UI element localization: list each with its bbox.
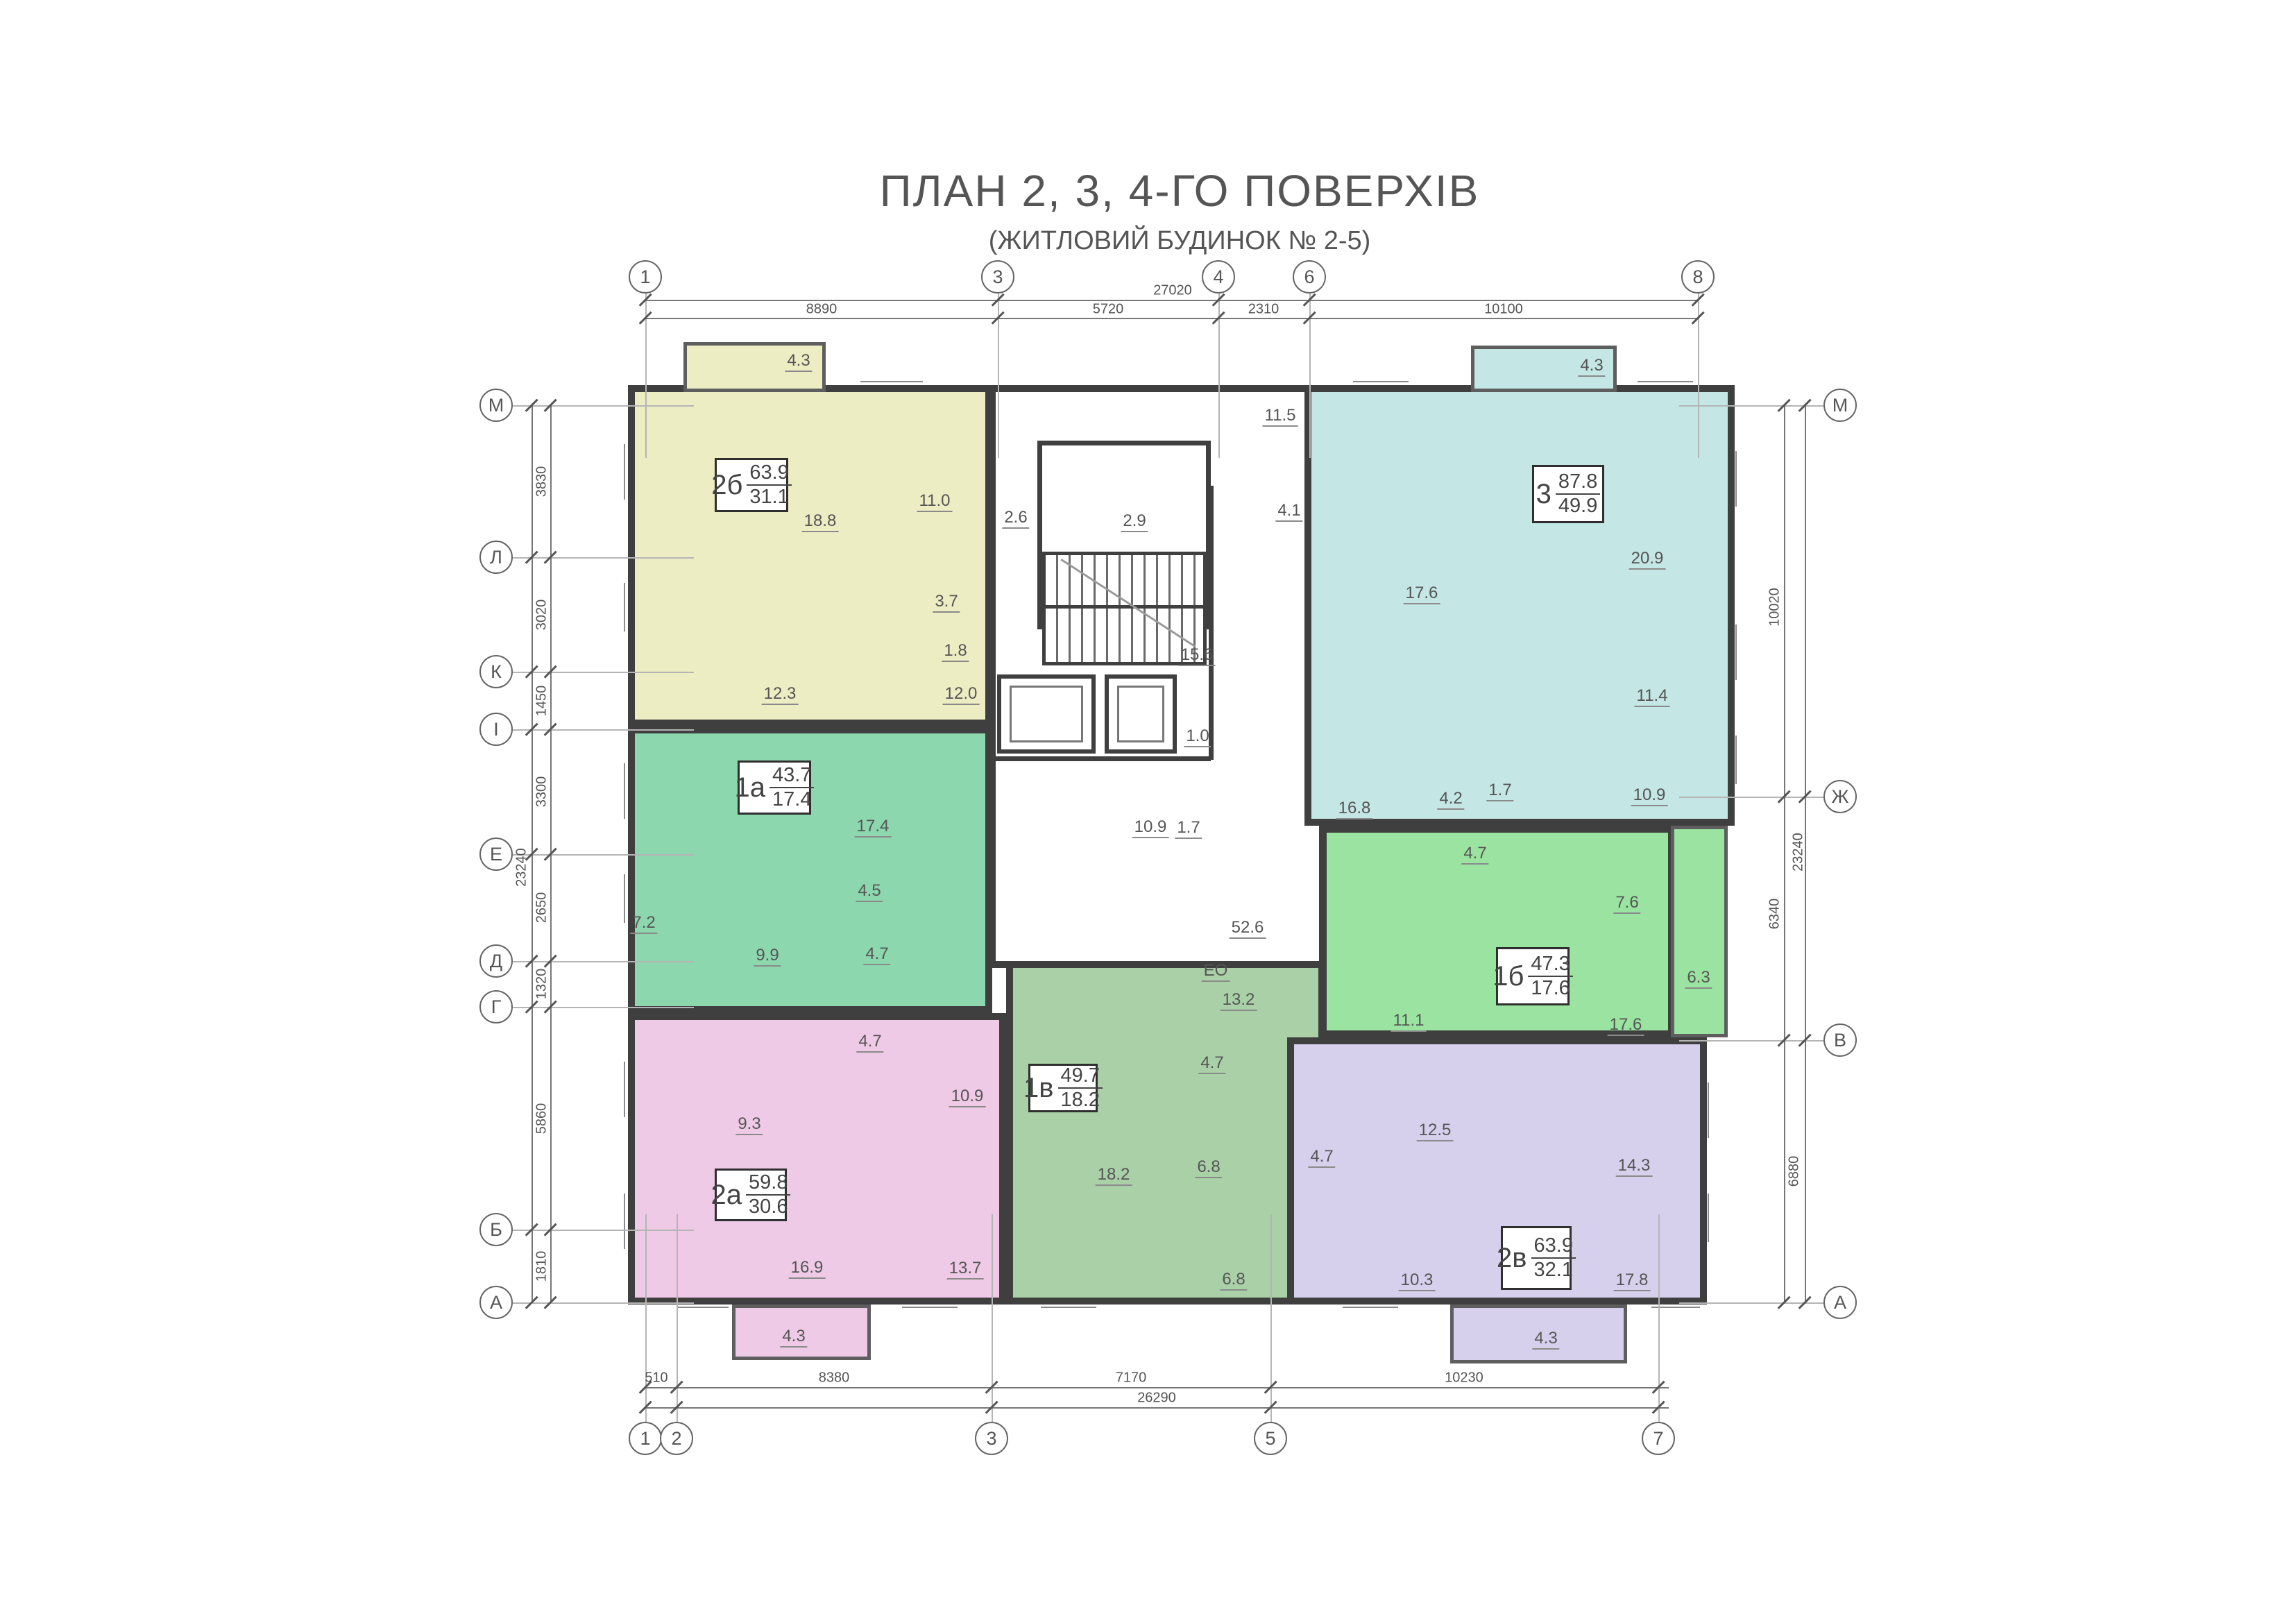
axis-circle-bottom-2: 2 [660, 1422, 693, 1455]
balcony-1b [1671, 826, 1728, 1037]
area-living: 32.1 [1534, 1259, 1573, 1282]
axis-circle-bottom-1: 1 [629, 1422, 662, 1455]
apartment-number: 2а [711, 1180, 742, 1211]
core-area-label: 52.6 [1230, 918, 1266, 939]
apartment-areas: 59.830.6 [746, 1171, 790, 1219]
apartment-areas: 49.718.2 [1058, 1064, 1103, 1112]
axis-stub [645, 1214, 647, 1422]
room-area-label: 17.6 [1404, 584, 1440, 604]
axis-stub [512, 672, 694, 673]
area-total: 49.7 [1058, 1064, 1103, 1089]
plan-title: ПЛАН 2, 3, 4-ГО ПОВЕРХІВ [860, 165, 1499, 216]
axis-circle-left-Д: Д [479, 944, 513, 978]
dimension-label: 23240 [514, 848, 530, 887]
area-living: 17.4 [772, 788, 811, 811]
axis-stub [1270, 1214, 1272, 1422]
axis-circle-top-3: 3 [981, 260, 1014, 294]
axis-stub [512, 1230, 694, 1231]
area-total: 47.3 [1528, 953, 1572, 977]
room-area-label: 12.5 [1417, 1121, 1454, 1141]
apartment-label-1b: 1б47.317.6 [1496, 947, 1570, 1005]
room-area-label: 6.8 [1195, 1157, 1222, 1178]
dimension-label: 5860 [534, 1103, 550, 1135]
apartment-label-2b: 2б63.931.1 [715, 458, 788, 512]
dimension-line [645, 1407, 1669, 1409]
stair-landing-line [1042, 605, 1207, 609]
dimension-label: 3300 [534, 776, 550, 808]
apartment-areas: 47.317.6 [1528, 953, 1572, 1001]
dimension-label: 510 [645, 1370, 667, 1386]
room-area-label: 17.6 [1608, 1015, 1644, 1036]
room-area-label: 17.4 [855, 817, 892, 838]
dimension-line [645, 1387, 1669, 1388]
apartment-number: 1б [1493, 961, 1524, 992]
axis-circle-top-6: 6 [1293, 260, 1326, 294]
room-area-label: 18.2 [1096, 1165, 1132, 1186]
area-living: 30.6 [749, 1196, 788, 1218]
area-living: 49.9 [1558, 495, 1597, 518]
apartment-1b [1320, 826, 1675, 1037]
room-area-label: 12.0 [943, 684, 980, 705]
dimension-label: 5720 [1093, 302, 1124, 318]
core-wall [992, 756, 1211, 761]
room-area-label: 10.9 [949, 1087, 986, 1107]
axis-circle-left-Б: Б [479, 1213, 513, 1246]
apartment-number: 2б [711, 470, 742, 501]
elevator-shaft-2 [1105, 674, 1177, 754]
room-area-label: 3.7 [933, 592, 960, 613]
area-total: 59.8 [746, 1171, 790, 1196]
area-living: 31.1 [749, 486, 788, 509]
room-area-label: 11.1 [1391, 1011, 1427, 1032]
axis-circle-bottom-5: 5 [1254, 1422, 1287, 1455]
axis-circle-right-В: В [1823, 1023, 1857, 1057]
dimension-label: 27020 [1153, 283, 1192, 299]
core-wall [1209, 486, 1214, 760]
apartment-areas: 63.932.1 [1531, 1234, 1576, 1282]
axis-circle-top-4: 4 [1202, 260, 1235, 294]
axis-circle-left-І: І [479, 713, 513, 746]
core-area-label: 1.0 [1184, 726, 1211, 747]
apartment-number: 1в [1023, 1073, 1054, 1104]
apartment-label-1v: 1в49.718.2 [1028, 1064, 1098, 1112]
room-area-label: 14.3 [1616, 1156, 1653, 1177]
dimension-line [1784, 405, 1785, 1302]
elevator-shaft-1 [997, 674, 1096, 754]
room-area-label: 20.9 [1629, 549, 1666, 570]
dimension-label: 10020 [1767, 588, 1783, 627]
elevator-car-icon [1010, 686, 1083, 742]
core-area-label: 4.1 [1275, 501, 1302, 522]
apartment-areas: 43.717.4 [769, 764, 814, 812]
apartment-areas: 87.849.9 [1556, 470, 1600, 518]
dimension-label: 6880 [1787, 1156, 1803, 1187]
axis-stub [512, 854, 694, 856]
dimension-label: 7170 [1116, 1370, 1147, 1386]
axis-circle-right-А: А [1823, 1286, 1857, 1319]
dimension-label: 1450 [534, 686, 550, 717]
dimension-label: 23240 [1791, 833, 1807, 872]
apartment-label-2v: 2в63.932.1 [1501, 1226, 1572, 1290]
axis-circle-left-Л: Л [479, 541, 513, 574]
dimension-label: 2650 [534, 892, 550, 924]
apartment-areas: 63.931.1 [747, 461, 791, 509]
dimension-label: 1320 [534, 969, 550, 1000]
dimension-label: 8380 [819, 1370, 850, 1386]
axis-circle-right-Ж: Ж [1823, 780, 1857, 813]
dimension-label: 10100 [1484, 302, 1523, 318]
core-area-label: 2.9 [1121, 511, 1148, 532]
core-area-label: 1.7 [1175, 818, 1202, 839]
room-area-label: 4.7 [1461, 844, 1488, 865]
room-area-label: 4.3 [785, 351, 812, 372]
axis-stub [1658, 1214, 1660, 1422]
room-area-label: 10.9 [1631, 785, 1668, 806]
apartment-number: 3 [1536, 479, 1551, 510]
room-area-label: 7.6 [1613, 893, 1640, 914]
apartment-number: 2в [1497, 1243, 1527, 1274]
room-area-label: 4.5 [856, 881, 883, 902]
room-area-label: 11.0 [917, 491, 953, 512]
room-area-label: 7.2 [630, 913, 657, 934]
apartment-number: 1а [735, 772, 766, 804]
plan-subtitle: (ЖИТЛОВИЙ БУДИНОК № 2-5) [860, 226, 1499, 256]
dimension-label: 8890 [806, 302, 837, 318]
axis-stub [512, 405, 694, 407]
room-area-label: 4.2 [1437, 789, 1464, 810]
dimension-label: 3830 [534, 466, 550, 498]
floor-plan: ПЛАН 2, 3, 4-ГО ПОВЕРХІВ (ЖИТЛОВИЙ БУДИН… [0, 0, 2296, 1623]
axis-stub [512, 961, 694, 962]
room-area-label: 12.3 [762, 684, 799, 705]
room-area-label: 4.3 [1532, 1329, 1559, 1350]
apartment-1v [1006, 961, 1325, 1305]
axis-circle-top-8: 8 [1681, 260, 1715, 294]
axis-circle-left-Е: Е [479, 838, 513, 871]
room-area-label: 9.9 [754, 946, 781, 967]
room-area-label: 4.3 [1578, 356, 1605, 377]
area-total: 63.9 [1531, 1234, 1576, 1259]
area-total: 63.9 [747, 461, 791, 486]
apartment-label-2a: 2а59.830.6 [715, 1169, 787, 1221]
axis-circle-top-1: 1 [629, 260, 662, 294]
room-area-label: 4.7 [1308, 1147, 1335, 1168]
core-area-label: 2.6 [1002, 508, 1029, 529]
room-area-label: 4.7 [856, 1032, 883, 1053]
core-area-label: 15.6 [1179, 645, 1216, 666]
dimension-label: 26290 [1137, 1391, 1176, 1407]
room-area-label: 18.8 [802, 511, 839, 532]
axis-stub [512, 1007, 694, 1008]
axis-stub [677, 1214, 678, 1422]
dimension-line [645, 318, 1698, 319]
room-area-label: 9.3 [735, 1114, 763, 1135]
room-area-label: 16.8 [1336, 799, 1373, 819]
room-area-label: 13.2 [1221, 990, 1257, 1011]
axis-circle-right-М: М [1823, 389, 1857, 422]
room-area-label: 6.3 [1685, 968, 1712, 989]
axis-stub [992, 1214, 993, 1422]
dimension-label: 6340 [1767, 899, 1783, 930]
axis-circle-left-А: А [479, 1286, 513, 1319]
core-area-label: 10.9 [1132, 817, 1169, 838]
axis-stub [512, 557, 694, 559]
apartment-3 [1304, 385, 1735, 826]
room-area-label: 16.9 [789, 1258, 826, 1279]
axis-stub [512, 1302, 694, 1304]
dimension-label: 10230 [1445, 1370, 1483, 1386]
room-area-label: 4.7 [1198, 1053, 1225, 1074]
dimension-label: 3020 [534, 600, 550, 631]
room-area-label: 4.7 [863, 944, 890, 965]
axis-circle-bottom-3: 3 [975, 1422, 1008, 1455]
area-total: 87.8 [1556, 470, 1600, 495]
core-area-label: 11.5 [1263, 406, 1298, 427]
area-total: 43.7 [769, 764, 814, 788]
room-area-label: 10.3 [1399, 1271, 1436, 1291]
axis-circle-left-М: М [479, 389, 513, 422]
room-area-label: 11.4 [1635, 686, 1670, 707]
elevator-car-icon [1117, 686, 1164, 742]
room-area-label: 13.7 [947, 1259, 984, 1280]
room-area-label: 1.8 [942, 641, 969, 662]
room-area-label: 6.8 [1220, 1270, 1247, 1291]
apartment-label-3: 387.849.9 [1532, 465, 1604, 523]
axis-circle-left-К: К [479, 655, 513, 688]
apartment-2b [628, 385, 992, 726]
room-area-label: 1.7 [1486, 781, 1513, 801]
area-living: 17.6 [1531, 977, 1570, 1000]
apartment-label-1a: 1а43.717.4 [738, 760, 811, 815]
dimension-label: 2310 [1248, 302, 1279, 318]
axis-circle-bottom-7: 7 [1642, 1422, 1675, 1455]
dimension-label: 1810 [534, 1251, 550, 1282]
room-area-label: 17.8 [1614, 1271, 1651, 1291]
area-living: 18.2 [1061, 1089, 1100, 1112]
axis-stub [512, 729, 694, 731]
dimension-line [645, 300, 1698, 301]
room-area-label: 4.3 [780, 1327, 807, 1348]
title-block: ПЛАН 2, 3, 4-ГО ПОВЕРХІВ (ЖИТЛОВИЙ БУДИН… [860, 165, 1499, 256]
room-area-label: ЕО [1202, 961, 1230, 982]
axis-circle-left-Г: Г [479, 990, 513, 1023]
